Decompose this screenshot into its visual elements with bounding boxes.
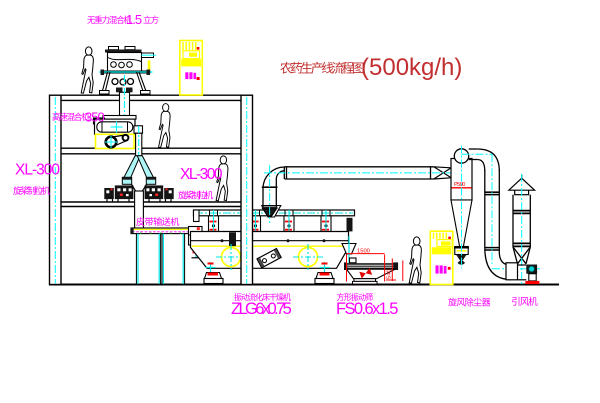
svg-text:旋风除尘器: 旋风除尘器 (448, 297, 491, 308)
svg-text:皮带输送机: 皮带输送机 (136, 216, 179, 227)
svg-text:ZLG6x0.75: ZLG6x0.75 (231, 300, 292, 318)
svg-text:350: 350 (85, 110, 104, 125)
svg-text:旋桨制粒机: 旋桨制粒机 (13, 185, 50, 196)
svg-text:1.5: 1.5 (126, 12, 142, 27)
svg-text:FS0.6x1.5: FS0.6x1.5 (336, 300, 398, 318)
svg-text:P500: P500 (454, 182, 465, 188)
svg-text:540: 540 (387, 269, 393, 279)
svg-text:XL-300: XL-300 (180, 166, 223, 183)
svg-text:引风机: 引风机 (511, 296, 538, 308)
svg-text:农药生产线流程图: 农药生产线流程图 (280, 61, 364, 76)
svg-text:立方: 立方 (143, 15, 159, 25)
svg-text:(500kg/h): (500kg/h) (361, 54, 462, 81)
svg-text:XL-300: XL-300 (15, 162, 60, 179)
svg-text:1500: 1500 (357, 249, 370, 255)
svg-text:旋桨制粒机: 旋桨制粒机 (178, 190, 213, 201)
